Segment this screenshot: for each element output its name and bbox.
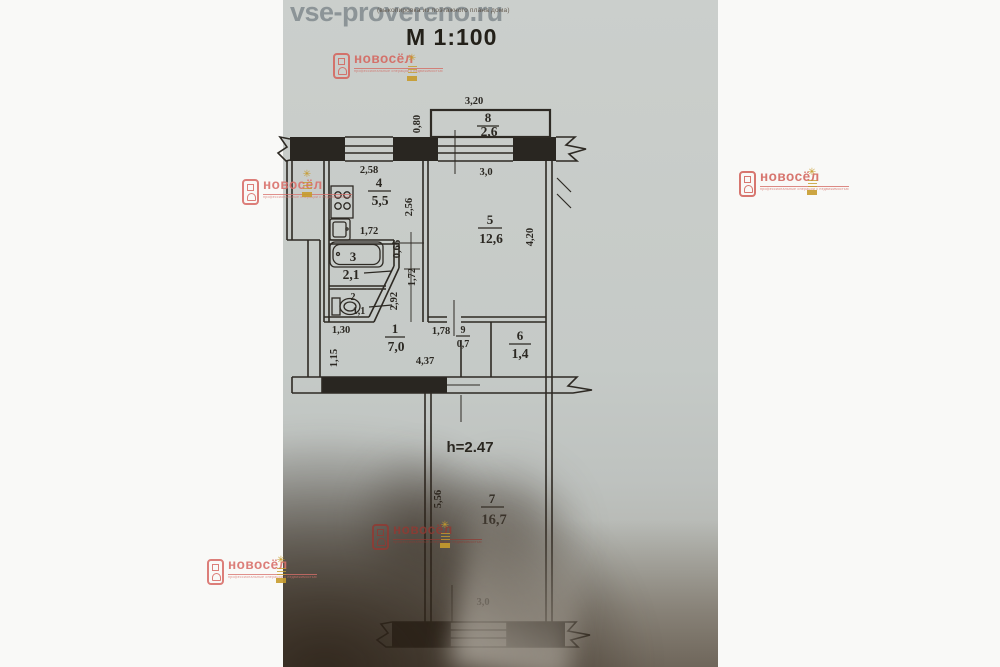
room2-number: 2 xyxy=(351,292,356,303)
wall-break-top-left xyxy=(278,137,290,161)
badge-star-icon: ✳ xyxy=(441,521,449,531)
novosel-logo-left: новосёл профессиональные операции с недв… xyxy=(242,178,352,205)
scale-title: М 1:100 xyxy=(406,24,497,51)
room5-area: 12,6 xyxy=(479,231,503,246)
wall-break-bottom-right xyxy=(565,622,590,647)
room3-number: 3 xyxy=(350,249,357,264)
badge-block xyxy=(302,192,312,197)
dim-entry-side: 1,15 xyxy=(329,349,340,367)
novosel-house-icon xyxy=(242,179,259,205)
badge-block xyxy=(276,578,286,583)
dim-hall-width: 4,37 xyxy=(416,356,434,367)
novosel-house-icon xyxy=(739,171,756,197)
award-badge-right: ✳ xyxy=(804,168,820,195)
badge-star-icon: ✳ xyxy=(277,556,285,566)
award-badge-top: ✳ xyxy=(404,54,420,81)
award-badge-photo: ✳ xyxy=(437,521,453,548)
dim-balcony-width: 3,20 xyxy=(465,96,483,107)
badge-block xyxy=(807,190,817,195)
novosel-house-icon xyxy=(333,53,350,79)
dim-balcony-depth: 0,80 xyxy=(412,115,423,133)
badge-block xyxy=(440,543,450,548)
floorplan-drawing: 8 2,6 3,20 0,80 3,0 2,58 4 5,5 2,56 5 12… xyxy=(0,0,1000,667)
novosel-logo-right: новосёл профессиональные операции с недв… xyxy=(739,170,849,197)
award-badge-bottom: ✳ xyxy=(273,556,289,583)
dim-wc-side: 2,92 xyxy=(389,292,400,310)
badge-star-icon: ✳ xyxy=(303,170,311,180)
room1-number: 1 xyxy=(392,321,399,336)
room6-area: 1,4 xyxy=(512,346,529,361)
novosel-subtitle: профессиональные операции с недвижимость… xyxy=(354,68,443,74)
room3-area: 2,1 xyxy=(343,267,360,282)
novosel-house-icon xyxy=(207,559,224,585)
room8-area: 2,6 xyxy=(481,124,498,139)
scanned-floorplan-page: 8 2,6 3,20 0,80 3,0 2,58 4 5,5 2,56 5 12… xyxy=(0,0,1000,667)
dim-bath-side: 1,72 xyxy=(407,268,418,286)
top-window-left xyxy=(345,137,393,161)
novosel-house-icon xyxy=(372,524,389,550)
dim-bath-top: 1,72 xyxy=(360,226,378,237)
room7-number: 7 xyxy=(489,491,496,506)
sink-icon xyxy=(330,219,350,240)
dim-strip-left: 1,78 xyxy=(432,326,450,337)
dim-room7-side: 5,56 xyxy=(433,490,444,508)
room2-area: 1,1 xyxy=(353,306,366,317)
wall-break-top-right xyxy=(556,137,586,161)
dim-room5-depth: 4,20 xyxy=(525,228,536,246)
wall-break-mid-right xyxy=(556,377,592,393)
dim-bottom-window: 3,0 xyxy=(476,597,489,608)
ceiling-height-note: h=2.47 xyxy=(446,439,493,456)
badge-block xyxy=(407,76,417,81)
novosel-logo-photo: новосёл профессиональные операции с недв… xyxy=(372,523,482,550)
room4-area: 5,5 xyxy=(372,193,389,208)
room4-number: 4 xyxy=(376,175,383,190)
room7-area: 16,7 xyxy=(481,512,506,528)
room9-area: 0,7 xyxy=(457,339,470,350)
award-badge-left: ✳ xyxy=(299,170,315,197)
dim-wc-width: 1,30 xyxy=(332,325,350,336)
hatch-marks xyxy=(557,178,571,208)
room6-number: 6 xyxy=(517,328,524,343)
novosel-name: новосёл xyxy=(354,52,443,66)
novosel-logo-bottom: новосёл профессиональные операции с недв… xyxy=(207,558,317,585)
top-window-right xyxy=(438,137,513,161)
room8-number: 8 xyxy=(485,110,492,125)
document-note: (выкопировка из поэтажного плана дома) xyxy=(377,7,510,14)
badge-star-icon: ✳ xyxy=(408,54,416,64)
wall-break-bottom-left xyxy=(377,622,392,647)
dim-top-window: 3,0 xyxy=(479,167,492,178)
novosel-logo-top: новосёл профессиональные операции с недв… xyxy=(333,52,443,79)
dim-niche: 0,66 xyxy=(392,240,403,258)
room9-number: 9 xyxy=(461,325,466,336)
bathtub-icon xyxy=(330,242,383,267)
room5-number: 5 xyxy=(487,212,494,227)
room1-area: 7,0 xyxy=(388,339,405,354)
badge-star-icon: ✳ xyxy=(808,168,816,178)
dim-kitchen-depth: 2,56 xyxy=(404,198,415,216)
